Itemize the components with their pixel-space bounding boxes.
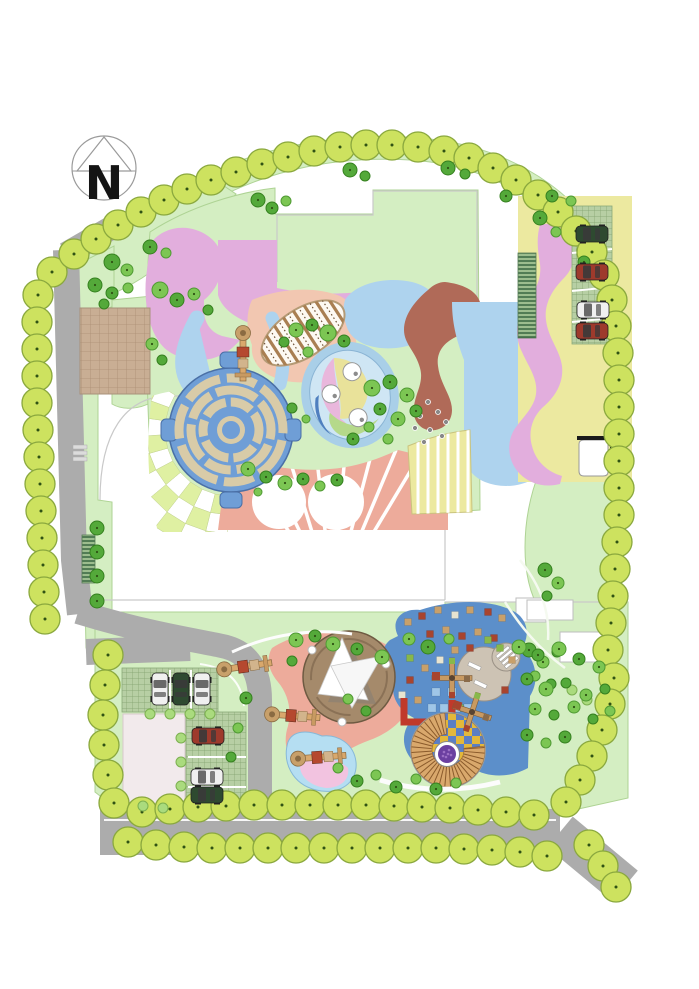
tree [158, 803, 168, 813]
rubber-tile [435, 607, 442, 614]
tree [541, 738, 551, 748]
rubber-tile [485, 637, 492, 644]
tree [561, 678, 571, 688]
checker-cell [108, 437, 131, 464]
parked-car [151, 673, 170, 705]
tree [233, 723, 243, 733]
tree [444, 634, 454, 644]
rubber-tile [459, 633, 466, 640]
tree [451, 778, 461, 788]
tree [281, 196, 291, 206]
tree [287, 656, 297, 666]
parked-car [192, 727, 224, 746]
lot-plaza [123, 714, 185, 806]
rubber-tile [467, 645, 474, 652]
checker-cell [122, 479, 151, 509]
tree [161, 248, 171, 258]
rubber-tile [419, 613, 426, 620]
checker-cell [192, 568, 226, 591]
tree [145, 709, 155, 719]
tree [287, 403, 297, 413]
tree [588, 714, 598, 724]
tree [165, 709, 175, 719]
checker-cell [132, 542, 169, 575]
rubber-tile [475, 629, 482, 636]
checker-cell [197, 549, 227, 572]
tree [549, 710, 559, 720]
rubber-tile [509, 657, 516, 664]
checker-cell [122, 509, 155, 542]
tree [176, 757, 186, 767]
rubber-tile [427, 631, 434, 638]
tree [203, 305, 213, 315]
tree [551, 227, 561, 237]
parked-car [193, 673, 212, 705]
parked-car [191, 768, 223, 787]
rubber-tile [399, 692, 406, 699]
checker-cell [169, 541, 201, 568]
tree [360, 171, 370, 181]
parked-car [172, 673, 191, 705]
parked-car [577, 301, 609, 320]
pebble [428, 428, 433, 433]
parked-car [576, 322, 608, 341]
checker-cell [108, 521, 144, 557]
tree [302, 415, 310, 423]
parked-car [576, 225, 608, 244]
parked-car [191, 786, 223, 805]
tree [364, 422, 374, 432]
parked-car [576, 263, 608, 282]
tree [542, 591, 552, 601]
rubber-tile [407, 677, 414, 684]
checker-cell [160, 558, 196, 587]
rubber-tile [499, 615, 506, 622]
tree [185, 709, 195, 719]
tree [361, 706, 371, 716]
building-outparcel-b [527, 600, 573, 620]
rubber-tile [485, 609, 492, 616]
checker-cell [95, 464, 123, 497]
tree [157, 355, 167, 365]
checker-cell [201, 531, 227, 553]
rubber-tile [497, 645, 504, 652]
tree [605, 706, 615, 716]
road-left [66, 250, 80, 614]
rubber-tile [502, 687, 509, 694]
tree [99, 299, 109, 309]
tree [303, 347, 313, 357]
rubber-tile [452, 612, 459, 619]
tree [343, 694, 353, 704]
pebble [440, 434, 445, 439]
building-south-edge [95, 520, 445, 600]
maze-entry-tab [220, 492, 242, 508]
rubber-tile [422, 665, 429, 672]
tree [138, 801, 148, 811]
checker-cell [127, 416, 147, 438]
rubber-tile [440, 704, 448, 712]
tree [123, 283, 133, 293]
pebble [413, 426, 418, 431]
tree [176, 781, 186, 791]
rubber-tile [428, 704, 436, 712]
spiral-play-mound [411, 713, 486, 788]
tree [333, 763, 343, 773]
rubber-tile [407, 655, 414, 662]
tree [315, 481, 325, 491]
landscape-master-plan: N [0, 0, 699, 989]
north-arrow: N [72, 136, 136, 210]
pebble [436, 410, 441, 415]
trellis-hedge [518, 253, 536, 338]
tree [176, 733, 186, 743]
tree [371, 770, 381, 780]
tree [411, 774, 421, 784]
tree [460, 169, 470, 179]
tree [279, 337, 289, 347]
entry-plaza-paving [80, 308, 150, 394]
pebble [422, 440, 427, 445]
tree [205, 709, 215, 719]
site-plan-canvas: N [0, 0, 699, 989]
tree [383, 434, 393, 444]
tree [600, 684, 610, 694]
building-entry-steps [73, 445, 87, 461]
rubber-tile [437, 657, 444, 664]
pebble [444, 420, 449, 425]
rubber-tile [443, 627, 450, 634]
rubber-tile [415, 697, 422, 704]
rubber-tile [467, 607, 474, 614]
checker-cell [127, 436, 149, 459]
tree [254, 488, 262, 496]
pebble [426, 400, 431, 405]
compass-label: N [85, 156, 124, 210]
tree [566, 196, 576, 206]
rubber-tile [405, 619, 412, 626]
checker-cell [113, 459, 139, 488]
tree [226, 752, 236, 762]
rubber-tile [452, 647, 459, 654]
rubber-tile [432, 688, 440, 696]
